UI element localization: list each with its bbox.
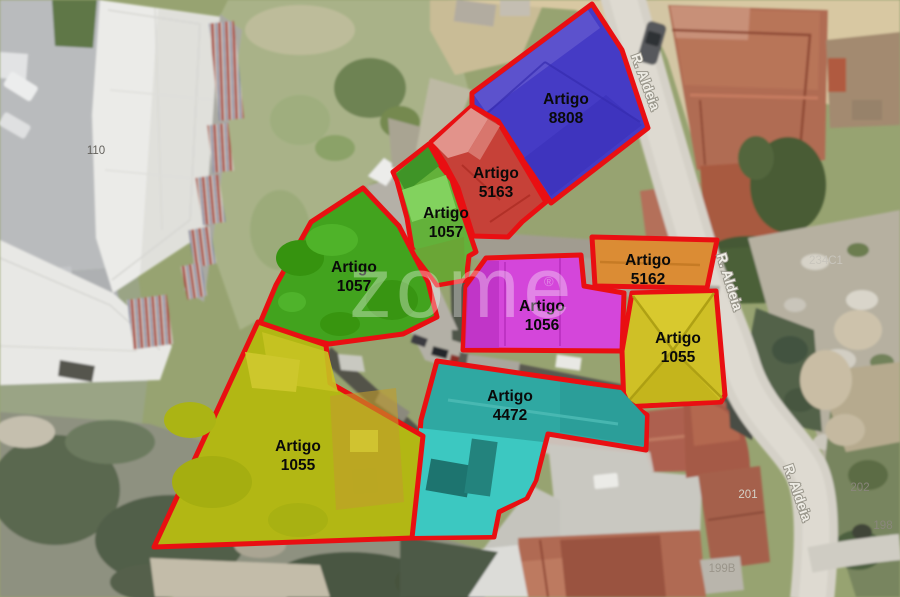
svg-text:1055: 1055 xyxy=(661,349,696,366)
svg-text:201: 201 xyxy=(738,489,757,501)
svg-text:4472: 4472 xyxy=(493,407,527,424)
svg-text:8808: 8808 xyxy=(549,110,584,127)
svg-text:Artigo: Artigo xyxy=(473,165,519,182)
svg-text:Artigo: Artigo xyxy=(275,438,321,455)
svg-text:199B: 199B xyxy=(709,563,736,575)
svg-text:®: ® xyxy=(544,274,554,289)
svg-text:110: 110 xyxy=(87,145,105,157)
svg-text:zome: zome xyxy=(349,240,575,336)
svg-text:Artigo: Artigo xyxy=(543,91,589,108)
svg-text:Artigo: Artigo xyxy=(487,388,533,405)
svg-text:5163: 5163 xyxy=(479,184,514,201)
svg-text:1057: 1057 xyxy=(429,224,463,241)
svg-text:Artigo: Artigo xyxy=(423,205,469,222)
svg-text:198: 198 xyxy=(873,520,892,532)
svg-text:1055: 1055 xyxy=(281,457,316,474)
svg-text:234C1: 234C1 xyxy=(809,255,843,267)
svg-text:Artigo: Artigo xyxy=(625,252,671,269)
svg-text:Artigo: Artigo xyxy=(655,330,701,347)
svg-text:202: 202 xyxy=(850,482,869,494)
svg-text:5162: 5162 xyxy=(631,271,665,288)
